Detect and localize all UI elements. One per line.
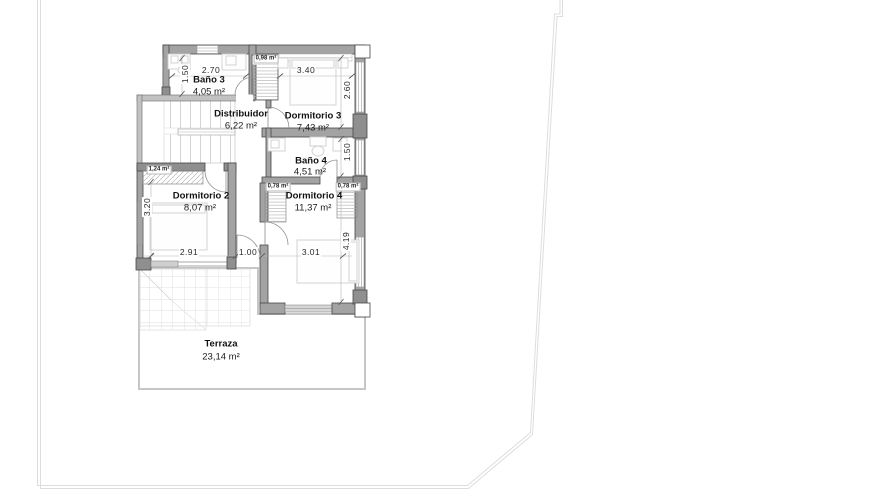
dimension-bano3-height: 1.50 [180, 64, 190, 84]
dimension-bano3-width: 2.70 [201, 65, 221, 75]
dimension-dorm2-width: 2.91 [179, 247, 199, 257]
dimension-dorm4-height: 4.19 [341, 231, 351, 251]
room-label-terraza: Terraza [204, 339, 237, 350]
area-label-wardrobe-d2: 1,24 m² [147, 166, 172, 175]
room-area-dormitorio4: 11,37 m² [295, 203, 332, 214]
room-label-bano4: Baño 4 [295, 156, 327, 167]
room-area-bano4: 4,51 m² [294, 167, 326, 178]
room-area-distribuidor: 6,22 m² [225, 121, 257, 132]
dimension-dorm4-width: 3.01 [301, 247, 321, 257]
room-label-bano3: Baño 3 [193, 75, 225, 86]
room-label-distribuidor: Distribuidor [214, 109, 268, 120]
room-area-dormitorio3: 7,43 m² [297, 123, 329, 134]
floorplan-canvas: Baño 3 4,05 m² Distribuidor 6,22 m² Dorm… [0, 0, 882, 504]
room-area-terraza: 23,14 m² [202, 352, 240, 363]
room-area-bano3: 4,05 m² [193, 87, 225, 98]
dimension-dorm3-width: 3.40 [296, 65, 316, 75]
terrace-outline [139, 268, 365, 389]
area-label-wardrobe-d4b: 0,78 m² [336, 183, 361, 192]
room-label-dormitorio2: Dormitorio 2 [173, 191, 229, 202]
room-label-dormitorio3: Dormitorio 3 [285, 111, 341, 122]
area-label-wardrobe-d4a: 0,78 m² [266, 183, 291, 192]
area-label-shaft: 0,98 m² [254, 55, 279, 64]
room-label-dormitorio4: Dormitorio 4 [286, 191, 342, 202]
dimension-hall-width: 1.00 [238, 247, 258, 257]
dimension-dorm3-height: 2.60 [342, 80, 352, 100]
dimension-bano4-height: 1.50 [342, 142, 352, 162]
dimension-dorm2-height: 3.20 [142, 197, 152, 217]
floor-plan-drawing [0, 0, 882, 504]
room-area-dormitorio2: 8,07 m² [184, 203, 216, 214]
